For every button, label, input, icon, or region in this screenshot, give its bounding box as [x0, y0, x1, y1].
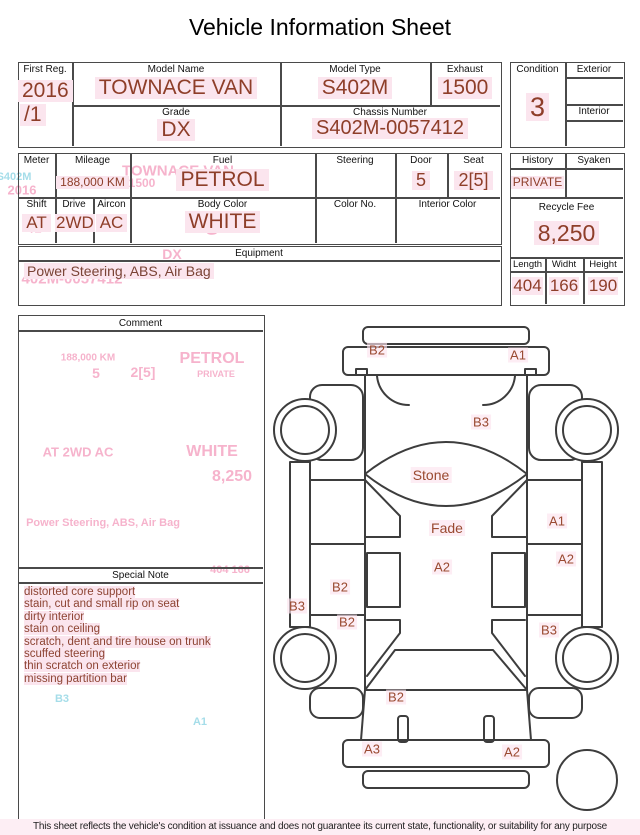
- drive-label: Drive: [55, 199, 93, 210]
- seat-value: 2[5]: [447, 171, 500, 190]
- model-type-value: S402M: [280, 77, 430, 99]
- damage-label: B3: [539, 623, 559, 638]
- damage-label: A2: [556, 552, 576, 567]
- height-label: Height: [583, 259, 623, 270]
- syaken-label: Syaken: [565, 155, 623, 166]
- mileage-label: Mileage: [55, 155, 130, 166]
- door-value: 5: [395, 171, 447, 190]
- chassis-number-value: S402M-0057412: [280, 118, 500, 139]
- car-front: [343, 327, 549, 405]
- height-value: 190: [583, 277, 623, 295]
- exhaust-label: Exhaust: [430, 64, 500, 75]
- damage-label: A1: [547, 514, 567, 529]
- special-note-line: missing partition bar: [24, 673, 260, 685]
- fuel-label: Fuel: [130, 155, 315, 166]
- car-rear: [343, 690, 549, 788]
- fuel-value: PETROL: [130, 169, 315, 191]
- equipment-label: Equipment: [18, 248, 500, 259]
- recycle-fee-label: Recycle Fee: [510, 202, 623, 213]
- damage-label: Stone: [411, 467, 452, 483]
- special-note-list: distorted core supportstain, cut and sma…: [24, 586, 260, 685]
- special-note-line: thin scratch on exterior: [24, 660, 260, 672]
- damage-label: B2: [330, 580, 350, 595]
- damage-label: B3: [287, 599, 307, 614]
- special-note-line: stain on ceiling: [24, 623, 260, 635]
- damage-label: B3: [471, 415, 491, 430]
- page-title: Vehicle Information Sheet: [0, 14, 640, 41]
- rear-window: [365, 650, 527, 690]
- model-name-label: Model Name: [72, 64, 280, 75]
- body-color-value: WHITE: [130, 211, 315, 233]
- damage-label: A3: [362, 742, 382, 757]
- exterior-label: Exterior: [565, 64, 623, 75]
- special-note-line: distorted core support: [24, 586, 260, 598]
- steering-label: Steering: [315, 155, 395, 166]
- exhaust-value: 1500: [430, 77, 500, 99]
- disclaimer-text: This sheet reflects the vehicle's condit…: [0, 819, 640, 835]
- damage-label: B2: [337, 615, 357, 630]
- recycle-fee-value: 8,250: [510, 221, 623, 245]
- door-label: Door: [395, 155, 447, 166]
- comment-label: Comment: [18, 318, 263, 329]
- color-no-label: Color No.: [315, 199, 395, 210]
- grade-label: Grade: [72, 107, 280, 118]
- mileage-value: 188,000 KM: [55, 176, 130, 189]
- first-reg-value: 2016: [18, 80, 72, 102]
- vehicle-information-sheet: Vehicle Information Sheet TOWNACE VAN150…: [0, 0, 640, 835]
- shift-value: AT: [18, 214, 55, 232]
- spare-tire: [557, 750, 617, 810]
- model-type-label: Model Type: [280, 64, 430, 75]
- interior-label: Interior: [565, 106, 623, 117]
- special-note-label: Special Note: [18, 570, 263, 581]
- first-reg-label: First Reg.: [18, 64, 72, 75]
- special-note-line: stain, cut and small rip on seat: [24, 598, 260, 610]
- special-note-line: scratch, dent and tire house on trunk: [24, 636, 260, 648]
- drive-value: 2WD: [55, 214, 93, 232]
- damage-label: A2: [502, 745, 522, 760]
- length-label: Length: [510, 259, 545, 270]
- aircon-value: AC: [93, 214, 130, 232]
- meter-label: Meter: [18, 155, 55, 166]
- model-name-value: TOWNACE VAN: [72, 77, 280, 99]
- condition-grade-value: 3: [510, 93, 565, 121]
- special-note-line: dirty interior: [24, 611, 260, 623]
- damage-label: B2: [367, 343, 387, 358]
- body-color-label: Body Color: [130, 199, 315, 210]
- width-label: Widht: [545, 259, 583, 270]
- length-value: 404: [510, 277, 545, 295]
- damage-label: A2: [432, 560, 452, 575]
- shift-label: Shift: [18, 199, 55, 210]
- damage-label: B2: [386, 690, 406, 705]
- damage-label: Fade: [429, 520, 465, 536]
- equipment-value: Power Steering, ABS, Air Bag: [24, 263, 494, 279]
- width-value: 166: [545, 277, 583, 295]
- condition-label: Condition: [510, 64, 565, 75]
- first-reg-value-month: /1: [20, 104, 70, 126]
- grade-value: DX: [72, 119, 280, 141]
- special-note-line: scuffed steering: [24, 648, 260, 660]
- interior-color-label: Interior Color: [395, 199, 500, 210]
- history-label: History: [510, 155, 565, 166]
- seat-label: Seat: [447, 155, 500, 166]
- aircon-label: Aircon: [93, 199, 130, 210]
- damage-label: A1: [508, 348, 528, 363]
- history-value: PRIVATE: [510, 176, 565, 189]
